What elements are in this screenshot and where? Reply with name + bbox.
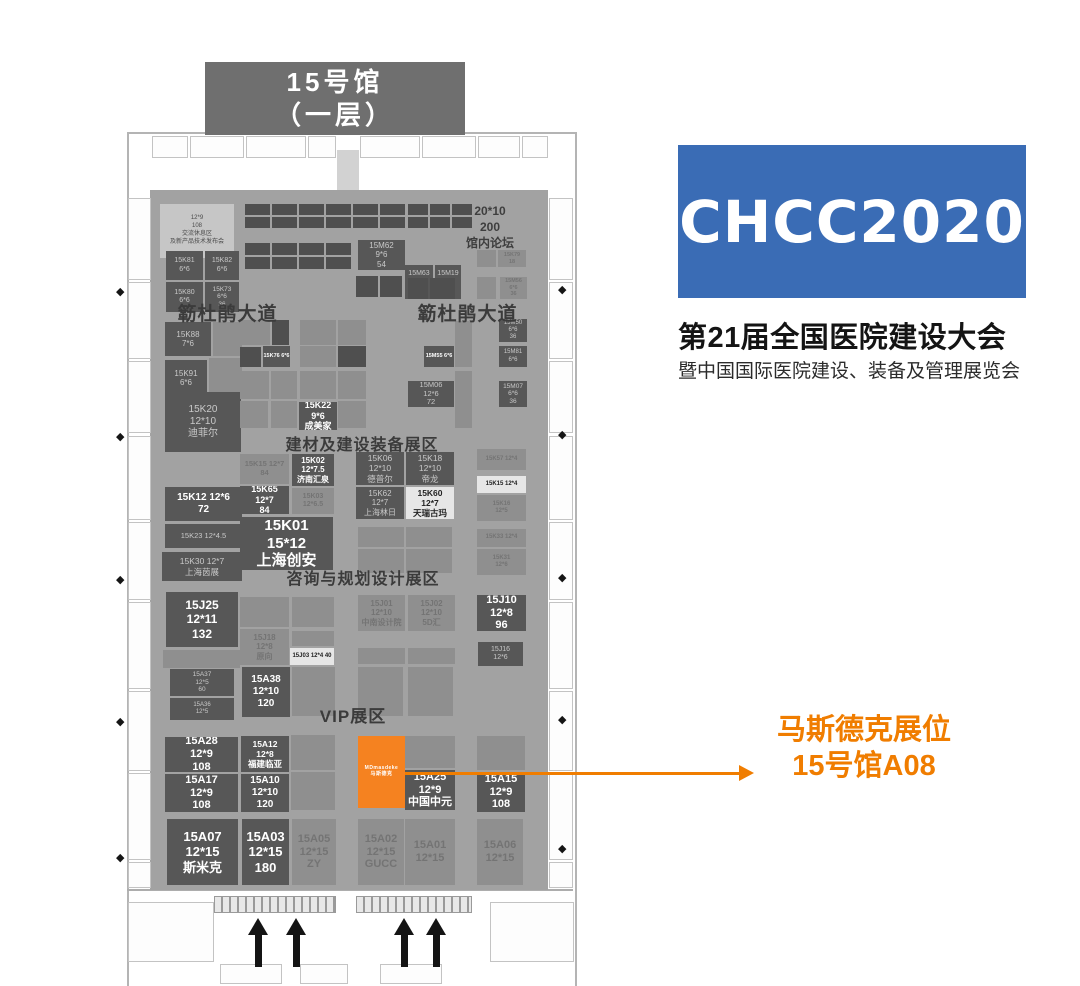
hall-banner: 15号馆 （一层） (205, 62, 465, 135)
booth-forum: 20*10200馆内论坛 (440, 202, 540, 252)
block-text: 15M19 (437, 270, 458, 278)
booth-15K33: 15K33 12*4 (477, 529, 526, 547)
block-text: 15A07 (183, 829, 221, 844)
block-text: 12*15 (367, 846, 396, 859)
map-block (338, 401, 366, 428)
block-text: 15K20 (189, 404, 218, 416)
block-text: 济南汇泉 (297, 475, 329, 484)
loading-dock (214, 896, 336, 913)
block-text: 12*8 (490, 607, 513, 620)
booth-zone-building-materials: 建材及建设装备展区 (278, 436, 446, 456)
map-block (477, 736, 525, 770)
conference-title: 第21届全国医院建设大会 (678, 314, 1030, 356)
block-text: 福建临亚 (248, 759, 282, 769)
booth-15K31: 15K3112*6 (477, 549, 526, 575)
block-text: 120 (258, 698, 275, 710)
cad-room (246, 136, 306, 158)
cad-room (128, 902, 214, 962)
booth-callout: 马斯德克展位 15号馆A08 (748, 712, 980, 785)
block-text: 12*5 (195, 679, 208, 687)
block-text: 132 (192, 627, 212, 641)
block-text: 15K22 (305, 402, 332, 411)
block-text: 咨询与规划设计展区 (286, 571, 439, 590)
block-text: 9*6 (311, 411, 325, 422)
block-text: 15J02 (420, 599, 442, 608)
booth-15K57: 15K57 12*4 (477, 449, 526, 470)
block-text: 15K91 (174, 369, 197, 378)
booth-15A12: 15A1212*8福建临亚 (241, 736, 289, 772)
cad-room (152, 136, 188, 158)
block-text: 交流休息区 (182, 231, 212, 239)
booth-15K76: 15K76 6*6 (263, 346, 290, 367)
block-text: 72 (198, 504, 209, 516)
booth-road-right: 簕杜鹃大道 (400, 303, 535, 327)
block-text: 中国中元 (408, 796, 452, 809)
booth-15A05: 15A0512*15ZY (292, 819, 336, 885)
block-text: 15A03 (246, 829, 284, 844)
booth-15M81: 15M816*6 (499, 346, 527, 367)
map-block (299, 217, 324, 228)
booth-15J25: 15J2512*11132 (166, 592, 238, 647)
block-text: 12*7 (255, 495, 274, 506)
block-text: 18 (509, 259, 515, 265)
block-text: 天瑞古玛 (413, 508, 447, 518)
cad-room (128, 282, 151, 359)
block-text: 15K33 12*4 (486, 534, 518, 541)
booth-15J10: 15J1012*896 (477, 595, 526, 631)
map-block (300, 346, 336, 367)
block-text: 15K60 (417, 488, 442, 498)
block-text: 建材及建设装备展区 (285, 437, 438, 456)
map-block (338, 371, 366, 399)
cad-room (522, 136, 548, 158)
cad-room (300, 964, 348, 984)
block-text: 120 (257, 799, 274, 811)
block-text: 簕杜鹃大道 (177, 304, 277, 326)
cad-room (128, 198, 151, 280)
block-text: 15A37 (193, 671, 212, 679)
booth-15K88: 15K887*6 (165, 322, 211, 356)
map-block (430, 278, 455, 299)
booth-15A06: 15A0612*15 (477, 819, 523, 885)
entrance-corridor (337, 150, 359, 190)
block-text: 15K31 (493, 555, 511, 562)
block-text: 20*10 (474, 203, 505, 219)
map-block (300, 371, 336, 399)
map-block (326, 243, 351, 255)
cad-room (220, 964, 282, 984)
block-text: 15K62 (368, 489, 391, 498)
booth-15K15-a: 15K15 12*784 (240, 454, 289, 484)
map-block (408, 648, 455, 664)
block-text: 108 (192, 799, 210, 812)
block-text: ZY (307, 858, 321, 871)
map-block (477, 250, 496, 267)
block-text: 12*10 (369, 463, 391, 473)
block-text: 15J10 (486, 595, 517, 607)
block-text: 12*10 (190, 416, 216, 428)
chcc-logo: CHCC2020 (678, 145, 1026, 298)
block-text: 15J01 (370, 599, 392, 608)
map-block (326, 204, 351, 215)
block-text: 12*10 (252, 787, 278, 799)
booth-15J02: 15J0212*105D汇 (408, 595, 455, 631)
map-block (245, 217, 270, 228)
floorplan-page: 15号馆 （一层） 簕杜鹃大道簕杜鹃大道建材及建设装备展区咨询与规划设计展区VI… (0, 0, 1080, 986)
dock-arrow-icon (286, 918, 306, 935)
cad-room (549, 522, 573, 600)
cad-room (128, 602, 151, 689)
block-text: 15K23 12*4.5 (181, 532, 226, 541)
diamond-marker-icon (116, 574, 128, 586)
booth-15K20: 15K2012*10迪菲尔 (165, 392, 241, 452)
booth-15M06: 15M0612*672 (408, 381, 454, 407)
map-block (272, 204, 297, 215)
cad-room (478, 136, 520, 158)
booth-zone-vip: VIP展区 (313, 706, 393, 728)
booth-15K12: 15K12 12*672 (165, 487, 242, 521)
block-text: 上海创安 (256, 552, 316, 570)
block-text: 12*8 (256, 749, 274, 759)
block-text: 上海茵展 (185, 567, 219, 577)
block-text: 15K81 (174, 257, 194, 265)
conference-subtitle: 暨中国国际医院建设、装备及管理展览会 (678, 356, 1048, 383)
diamond-marker-icon (558, 284, 570, 296)
block-text: 15K15 12*4 (486, 481, 518, 488)
diamond-marker-icon (558, 572, 570, 584)
block-text: 12*5 (495, 508, 507, 515)
block-text: 60 (198, 686, 205, 694)
map-block (408, 667, 453, 716)
block-text: 12*7.5 (301, 465, 324, 474)
block-text: 15M63 (408, 270, 429, 278)
block-text: 15A10 (250, 775, 279, 787)
dock-arrow-icon (394, 918, 414, 935)
booth-15A02: 15A0212*15GUCC (358, 819, 404, 885)
booth-15K16: 15K1612*5 (477, 495, 526, 521)
block-text: 15K57 12*4 (486, 456, 518, 463)
block-text: 200 (480, 219, 500, 235)
cad-room (128, 361, 151, 433)
block-text: 12*9 (190, 787, 213, 800)
map-block (299, 204, 324, 215)
map-block (353, 204, 378, 215)
block-text: 15A06 (484, 839, 516, 852)
block-text: 6*6 (508, 357, 517, 364)
booth-15J16: 15J1612*6 (478, 642, 523, 666)
block-text: VIP展区 (320, 707, 386, 727)
map-block (358, 648, 405, 664)
block-text: 15K02 (301, 456, 325, 465)
block-text: 15A05 (298, 833, 330, 846)
block-text: 108 (192, 761, 210, 772)
block-text: 12*9 (190, 748, 213, 761)
booth-15K82: 15K826*6 (205, 251, 239, 280)
map-block (380, 217, 405, 228)
booth-15K22: 15K229*6成美家 (299, 402, 337, 430)
booth-info-box: 12*9108交流休息区及新产品技术发布会 (160, 204, 234, 258)
cad-room (128, 436, 151, 520)
block-text: 84 (259, 505, 269, 514)
block-text: 馆内论坛 (466, 235, 514, 251)
block-text: 72 (427, 398, 435, 407)
block-text: 12*10 (419, 463, 441, 473)
booth-15K01: 15K0115*12上海创安 (240, 517, 333, 570)
booth-15K06: 15K0612*10德普尔 (356, 452, 404, 485)
map-block (271, 401, 297, 428)
block-text: 中南设计院 (362, 618, 402, 627)
map-block (338, 346, 366, 367)
block-text: 15*12 (267, 535, 306, 553)
block-text: 15J16 (491, 646, 510, 654)
block-text: 15M07 (503, 383, 523, 391)
block-text: 斯米克 (183, 860, 222, 875)
map-block (405, 736, 455, 768)
block-text: 15A38 (251, 674, 280, 686)
block-text: 12*6 (493, 654, 507, 662)
block-text: 15K30 12*7 (180, 556, 224, 566)
block-text: 12*15 (486, 852, 515, 865)
map-block (380, 204, 405, 215)
block-text: 9*6 (375, 250, 387, 259)
cad-room (549, 602, 573, 689)
map-block (291, 772, 335, 810)
booth-15M62: 15M629*654 (358, 240, 405, 270)
cad-room (308, 136, 336, 158)
booth-15A25: 15A2512*9中国中元 (405, 770, 455, 810)
booth-pointer-arrow-icon (739, 765, 754, 781)
diamond-marker-icon (116, 286, 128, 298)
booth-15K91: 15K916*6 (165, 360, 207, 396)
block-text: 12*15 (416, 852, 445, 865)
diamond-marker-icon (116, 716, 128, 728)
booth-15A38: 15A3812*10120 (242, 667, 290, 717)
map-block (299, 243, 324, 255)
block-text: 12*7 (421, 498, 439, 508)
block-text: 36 (509, 398, 516, 406)
block-text: 马斯德克 (370, 772, 392, 778)
block-text: 帝龙 (421, 474, 438, 484)
block-text: 15K73 (213, 286, 232, 294)
block-text: 15M81 (504, 349, 522, 356)
block-text: 108 (492, 798, 510, 811)
booth-15K02: 15K0212*7.5济南汇泉 (292, 454, 334, 486)
cad-room (549, 436, 573, 520)
map-block (300, 320, 336, 345)
map-block (406, 527, 452, 547)
map-block (326, 217, 351, 228)
block-text: 12*9 (419, 784, 442, 797)
booth-15K62: 15K6212*7上海林日 (356, 487, 404, 519)
block-text: 15M62 (369, 241, 393, 250)
block-text: 96 (495, 619, 507, 631)
block-text: 15A02 (365, 833, 397, 846)
booth-15K60: 15K6012*7天瑞古玛 (406, 487, 454, 519)
map-block (163, 650, 240, 668)
booth-15K18: 15K1812*10帝龙 (406, 452, 454, 485)
booth-15K15-b: 15K15 12*4 (477, 476, 526, 493)
map-block (408, 278, 428, 299)
block-text: 12*15 (249, 844, 283, 859)
map-block (408, 217, 428, 228)
booth-15K03: 15K0312*6.5 (292, 488, 334, 514)
map-block (240, 371, 269, 399)
block-text: 15J18 (253, 633, 275, 642)
loading-dock (356, 896, 472, 913)
block-text: 15J03 12*4 40 (292, 653, 331, 660)
map-block (240, 597, 289, 627)
block-text: 15K88 (176, 330, 199, 339)
booth-callout-line1: 马斯德克展位 (748, 712, 980, 748)
dock-arrow-stem (255, 935, 262, 967)
map-block (240, 347, 261, 367)
dock-arrow-icon (248, 918, 268, 935)
map-block (338, 320, 366, 345)
booth-callout-line2: 15号馆A08 (748, 748, 980, 784)
booth-15J03: 15J03 12*4 40 (290, 648, 334, 665)
booth-15A10: 15A1012*10120 (241, 774, 289, 812)
cad-room (549, 862, 573, 888)
cad-room (549, 691, 573, 771)
map-block (477, 277, 496, 299)
dock-arrow-stem (433, 935, 440, 967)
block-text: 6*6 (508, 390, 518, 398)
block-text: 15K12 12*6 (177, 492, 230, 504)
block-text: 6*6 (508, 327, 517, 334)
map-block (299, 257, 324, 269)
map-block (272, 217, 297, 228)
block-text: 原向 (257, 652, 273, 661)
block-text: 12*10 (253, 686, 279, 698)
block-text: 15A28 (185, 737, 217, 748)
cad-room (128, 773, 151, 860)
booth-15A01: 15A0112*15 (405, 819, 455, 885)
booth-15K65: 15K6512*784 (240, 486, 289, 514)
booth-15A17: 15A1712*9108 (165, 774, 238, 812)
block-text: 15A36 (193, 702, 210, 709)
cad-room (549, 198, 573, 280)
block-text: 15K80 (174, 289, 194, 297)
cad-room (190, 136, 244, 158)
block-text: 84 (260, 469, 268, 478)
block-text: 上海林日 (364, 508, 396, 517)
block-text: 及新产品技术发布会 (170, 239, 224, 247)
booth-pointer-line (405, 772, 741, 775)
map-block (245, 243, 270, 255)
booth-15M55: 15M55 6*6 (424, 346, 454, 367)
diamond-marker-icon (116, 431, 128, 443)
map-block (213, 322, 242, 356)
booth-15A36: 15A3612*5 (170, 698, 234, 720)
block-text: 15J25 (185, 598, 218, 612)
block-text: 成美家 (304, 421, 331, 430)
block-text: 12*10 (371, 608, 392, 617)
block-text: 12*11 (187, 612, 218, 626)
diamond-marker-icon (558, 843, 570, 855)
map-block (353, 217, 378, 228)
block-text: 15A12 (252, 739, 277, 749)
block-text: 15K76 6*6 (264, 353, 290, 359)
booth-15M56: 15M566*636 (500, 277, 527, 299)
block-text: 15M55 6*6 (426, 353, 453, 359)
block-text: 6*6 (217, 266, 228, 274)
booth-15A37: 15A3712*560 (170, 669, 234, 696)
block-text: 12*15 (300, 846, 329, 859)
block-text: 15K16 (493, 501, 511, 508)
block-text: 15K01 (264, 517, 308, 535)
map-block (455, 371, 472, 428)
block-text: 15A01 (414, 839, 446, 852)
block-text: 15K03 (303, 493, 324, 501)
block-text: 6*6 (217, 293, 227, 301)
cad-room (549, 361, 573, 433)
booth-booth-A08: MDmasdeke马斯德克 (358, 736, 405, 808)
block-text: 12*10 (421, 608, 442, 617)
block-text: 5D汇 (422, 618, 440, 627)
block-text: 簕杜鹃大道 (417, 304, 517, 326)
booth-15A07: 15A0712*15斯米克 (167, 819, 238, 885)
booth-15A28: 15A2812*9108 (165, 737, 238, 772)
dock-arrow-stem (293, 935, 300, 967)
diamond-marker-icon (558, 429, 570, 441)
booth-zone-consulting: 咨询与规划设计展区 (279, 570, 447, 590)
block-text: 180 (255, 860, 277, 875)
map-block (292, 631, 334, 646)
booth-15K79: 15K7918 (498, 250, 526, 267)
map-block (240, 401, 268, 428)
booth-road-left: 簕杜鹃大道 (160, 303, 295, 327)
block-text: 54 (377, 260, 386, 269)
block-text: 迪菲尔 (188, 428, 218, 440)
block-text: 108 (192, 223, 202, 231)
map-block (272, 257, 297, 269)
booth-15M07: 15M076*636 (499, 381, 527, 407)
block-text: 12*6.5 (303, 501, 323, 509)
chcc-logo-text: CHCC2020 (679, 188, 1025, 256)
map-block (271, 371, 297, 399)
map-block (326, 257, 351, 269)
map-block (291, 735, 335, 770)
cad-room (128, 862, 151, 888)
block-text: 12*15 (186, 844, 220, 859)
block-text: 12*8 (256, 642, 272, 651)
cad-room (422, 136, 476, 158)
booth-15K81: 15K816*6 (166, 251, 203, 280)
booth-15K30: 15K30 12*7上海茵展 (162, 552, 242, 581)
diamond-marker-icon (116, 852, 128, 864)
map-block (245, 204, 270, 215)
dock-arrow-icon (426, 918, 446, 935)
map-block (245, 257, 270, 269)
block-text: 12*7 (372, 498, 388, 507)
hall-banner-line1: 15号馆 (287, 66, 384, 99)
cad-room (380, 964, 442, 984)
block-text: 12*5 (196, 709, 208, 716)
booth-15J18: 15J1812*8原向 (240, 629, 289, 665)
map-block (272, 243, 297, 255)
cad-room (360, 136, 420, 158)
map-block (292, 597, 334, 627)
block-text: 15K65 (251, 486, 278, 495)
map-block (380, 276, 402, 297)
map-block (408, 204, 428, 215)
dock-arrow-stem (401, 935, 408, 967)
block-text: 36 (510, 291, 516, 297)
block-text: 德普尔 (367, 474, 393, 484)
block-text: 12*6 (495, 562, 507, 569)
block-text: 12*9 (191, 215, 203, 223)
cad-room (128, 522, 151, 600)
